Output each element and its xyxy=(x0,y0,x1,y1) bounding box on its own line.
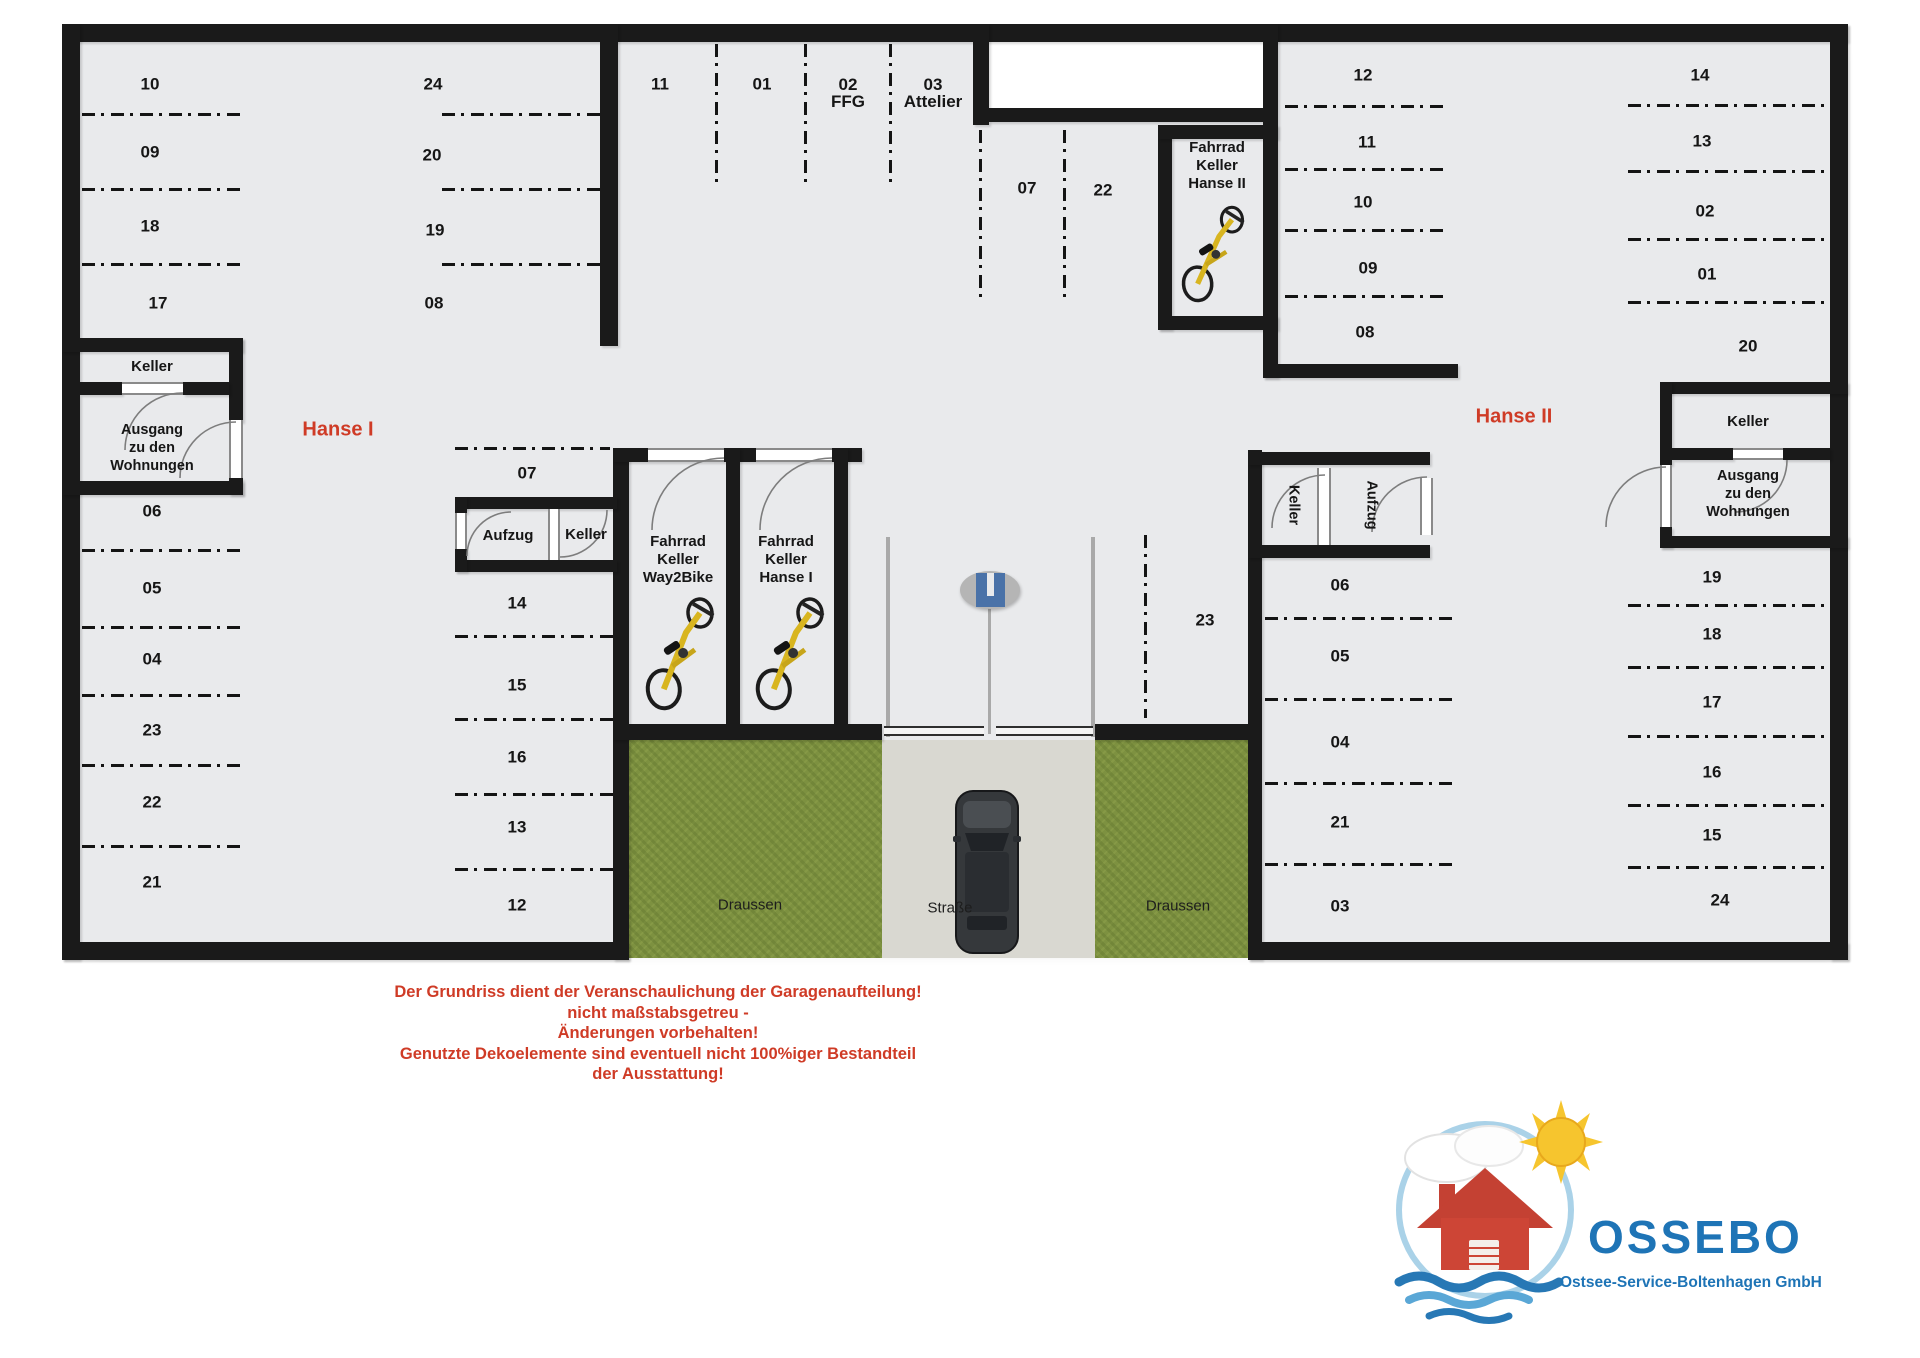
garage-floor-plan: Keller Ausgang zu den Wohnungen Aufzug K… xyxy=(0,0,1920,1358)
disclaimer-line: Änderungen vorbehalten! xyxy=(358,1023,958,1044)
parking-spot-label: 20 xyxy=(1739,338,1758,355)
parking-spot-label: 10 xyxy=(141,76,160,93)
entrance-post xyxy=(886,537,890,737)
parking-spot-label: 06 xyxy=(1331,577,1350,594)
disclaimer-line: Genutzte Dekoelemente sind eventuell nic… xyxy=(358,1044,958,1065)
bicycle-icon xyxy=(748,585,838,720)
disclaimer-line: Der Grundriss dient der Veranschaulichun… xyxy=(358,982,958,1003)
ossebo-logo-subtitle: Ostsee-Service-Boltenhagen GmbH xyxy=(1560,1274,1822,1292)
parking-spot-label: 23 xyxy=(143,722,162,739)
parking-spot-label: 15 xyxy=(508,677,527,694)
barrier-sign-pole xyxy=(988,600,991,734)
parking-spot-label: 11 xyxy=(651,76,669,93)
parking-spot-label: 03 Attelier xyxy=(904,76,963,110)
bicycle-icon xyxy=(638,585,728,720)
barrier-sign-glyph-slot xyxy=(987,573,994,596)
parking-spot-label: 17 xyxy=(149,295,168,312)
room-label-keller: Keller xyxy=(131,358,173,376)
building-label-hanse2: Hanse II xyxy=(1476,406,1553,429)
door-arcs xyxy=(0,0,1920,1358)
parking-spot-label: 09 xyxy=(141,144,160,161)
parking-spot-label: 13 xyxy=(508,819,527,836)
parking-spot-label: 03 xyxy=(1331,898,1350,915)
parking-spot-label: 21 xyxy=(143,874,162,891)
parking-spot-label: 08 xyxy=(425,295,444,312)
parking-spot-label: 05 xyxy=(143,580,162,597)
parking-spot-label: 07 xyxy=(1018,180,1037,197)
bicycle-icon xyxy=(1176,198,1266,318)
room-label-aufzug-rotated: Aufzug xyxy=(1364,480,1379,529)
parking-spot-label: 15 xyxy=(1703,827,1722,844)
ossebo-logo-name: OSSEBO xyxy=(1588,1210,1803,1264)
room-label-keller-rotated: Keller xyxy=(1286,485,1301,525)
parking-spot-label: 18 xyxy=(1703,626,1722,643)
parking-spot-label: 04 xyxy=(1331,734,1350,751)
outdoor-label-draussen-left: Draussen xyxy=(718,897,782,914)
parking-spot-label: 17 xyxy=(1703,694,1722,711)
parking-spot-label: 19 xyxy=(426,222,445,239)
room-label-bike-hanse1: Fahrrad Keller Hanse I xyxy=(758,533,814,587)
parking-spot-label: 20 xyxy=(423,147,442,164)
parking-spot-label: 12 xyxy=(1354,67,1373,84)
parking-spot-label: 11 xyxy=(1358,134,1376,151)
parking-spot-label: 22 xyxy=(143,794,162,811)
entrance-post xyxy=(1091,537,1095,737)
entrance-gate xyxy=(884,726,984,736)
outdoor-label-draussen-right: Draussen xyxy=(1146,898,1210,915)
parking-spot-label: 24 xyxy=(424,76,443,93)
disclaimer-text: Der Grundriss dient der Veranschaulichun… xyxy=(358,982,958,1085)
room-label-bike-hanse2: Fahrrad Keller Hanse II xyxy=(1188,139,1246,193)
entrance-gate xyxy=(996,726,1093,736)
ossebo-logo-emblem xyxy=(1385,1098,1595,1343)
room-label-aufzug: Aufzug xyxy=(483,527,534,545)
room-label-keller: Keller xyxy=(1727,413,1769,431)
parking-spot-label: 21 xyxy=(1331,814,1350,831)
parking-spot-label: 12 xyxy=(508,897,527,914)
parking-spot-label: 13 xyxy=(1693,133,1712,150)
parking-spot-label: 06 xyxy=(143,503,162,520)
outdoor-label-strasse: Straße xyxy=(927,900,972,917)
disclaimer-line: der Ausstattung! xyxy=(358,1064,958,1085)
parking-spot-label: 16 xyxy=(1703,764,1722,781)
car-top-view xyxy=(953,788,1021,956)
parking-spot-label: 02 xyxy=(1696,203,1715,220)
room-label-ausgang: Ausgang zu den Wohnungen xyxy=(1706,467,1790,521)
parking-spot-label: 01 xyxy=(753,76,772,93)
parking-spot-label: 18 xyxy=(141,218,160,235)
parking-spot-label: 05 xyxy=(1331,648,1350,665)
parking-spot-label: 02 FFG xyxy=(831,76,865,110)
building-label-hanse1: Hanse I xyxy=(302,419,373,442)
parking-spot-label: 16 xyxy=(508,749,527,766)
parking-spot-label: 08 xyxy=(1356,324,1375,341)
parking-spot-label: 09 xyxy=(1359,260,1378,277)
parking-spot-label: 14 xyxy=(508,595,527,612)
room-label-bike-way2bike: Fahrrad Keller Way2Bike xyxy=(643,533,713,587)
parking-spot-label: 14 xyxy=(1691,67,1710,84)
parking-spot-label: 23 xyxy=(1196,612,1215,629)
parking-spot-label: 24 xyxy=(1711,892,1730,909)
room-label-ausgang: Ausgang zu den Wohnungen xyxy=(110,421,194,475)
parking-spot-label: 04 xyxy=(143,651,162,668)
parking-spot-label: 22 xyxy=(1094,182,1113,199)
parking-spot-label: 07 xyxy=(518,465,537,482)
room-label-keller: Keller xyxy=(565,526,607,544)
parking-spot-label: 19 xyxy=(1703,569,1722,586)
disclaimer-line: nicht maßstabsgetreu - xyxy=(358,1003,958,1024)
parking-spot-label: 01 xyxy=(1698,266,1717,283)
parking-spot-label: 10 xyxy=(1354,194,1373,211)
